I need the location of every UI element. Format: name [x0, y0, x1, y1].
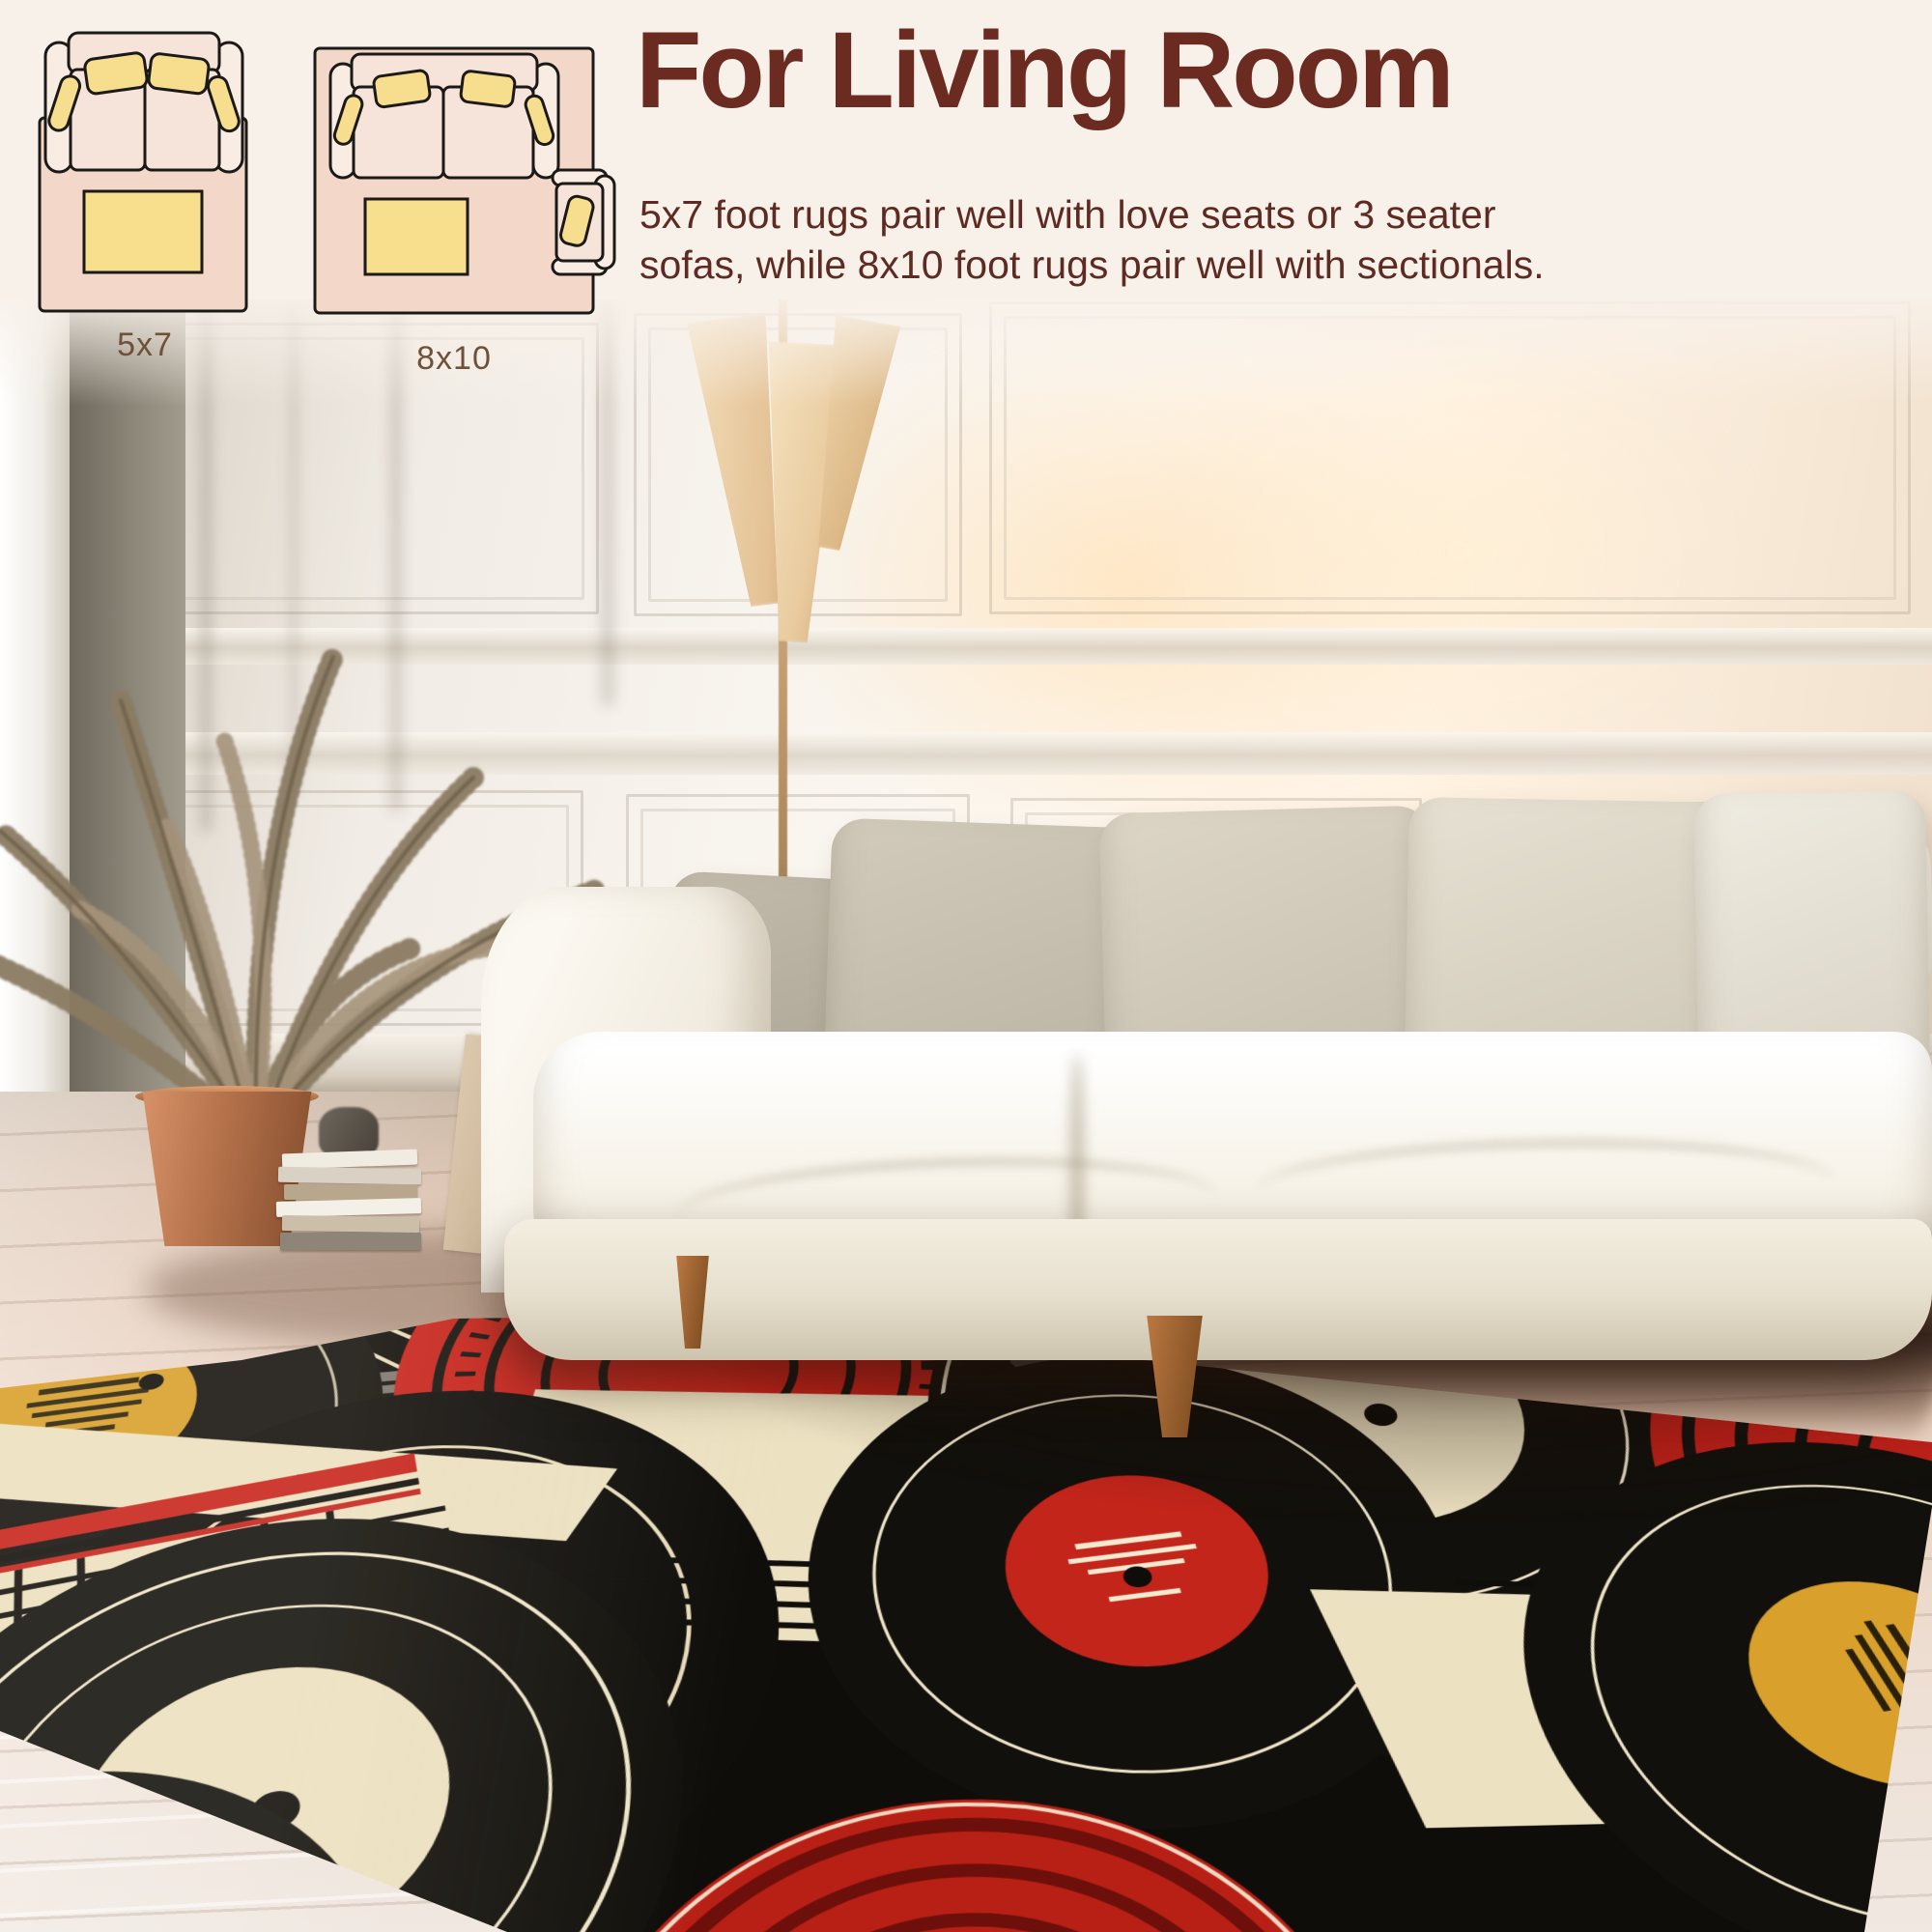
- coffee-table-top-view: [84, 191, 202, 272]
- rug-diagram-5x7: [32, 19, 256, 321]
- page-description: 5x7 foot rugs pair well with love seats …: [639, 189, 1548, 290]
- small-sculpture: [319, 1107, 379, 1157]
- page-description-line2: sofas, while 8x10 foot rugs pair well wi…: [639, 240, 1548, 290]
- page-description-line1: 5x7 foot rugs pair well with love seats …: [639, 189, 1548, 240]
- rug-diagram-8x10: [309, 33, 620, 327]
- book: [278, 1167, 421, 1185]
- size-label-5x7: 5x7: [39, 327, 251, 364]
- photo-top-fade: [0, 290, 1932, 406]
- size-label-8x10: 8x10: [319, 340, 589, 378]
- coffee-table-top-view: [365, 199, 468, 274]
- loveseat-top-view: [45, 33, 242, 172]
- armchair-top-view: [553, 170, 614, 274]
- rug-product-infographic: For Living Room 5x7 foot rugs pair well …: [0, 0, 1932, 1932]
- sofa-top-view: [330, 54, 558, 178]
- sofa-base: [504, 1219, 1932, 1360]
- book: [284, 1184, 417, 1200]
- book: [282, 1215, 419, 1233]
- page-title: For Living Room: [636, 8, 1452, 132]
- living-room-photo: [0, 290, 1932, 1932]
- book: [280, 1233, 421, 1250]
